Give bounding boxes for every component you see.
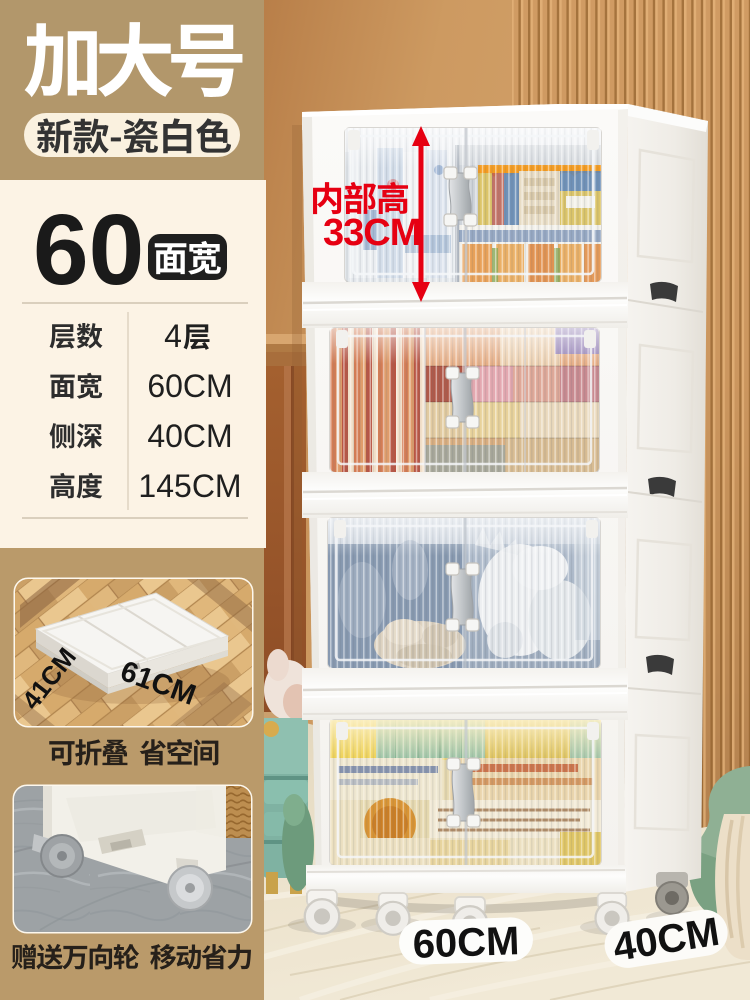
svg-text:145CM: 145CM [138,468,241,504]
svg-text:40CM: 40CM [147,418,232,454]
svg-text:60: 60 [33,194,144,306]
svg-text:60CM: 60CM [412,919,520,967]
svg-text:33CM: 33CM [323,212,420,254]
svg-text:60CM: 60CM [147,368,232,404]
svg-text:4: 4 [164,318,182,354]
